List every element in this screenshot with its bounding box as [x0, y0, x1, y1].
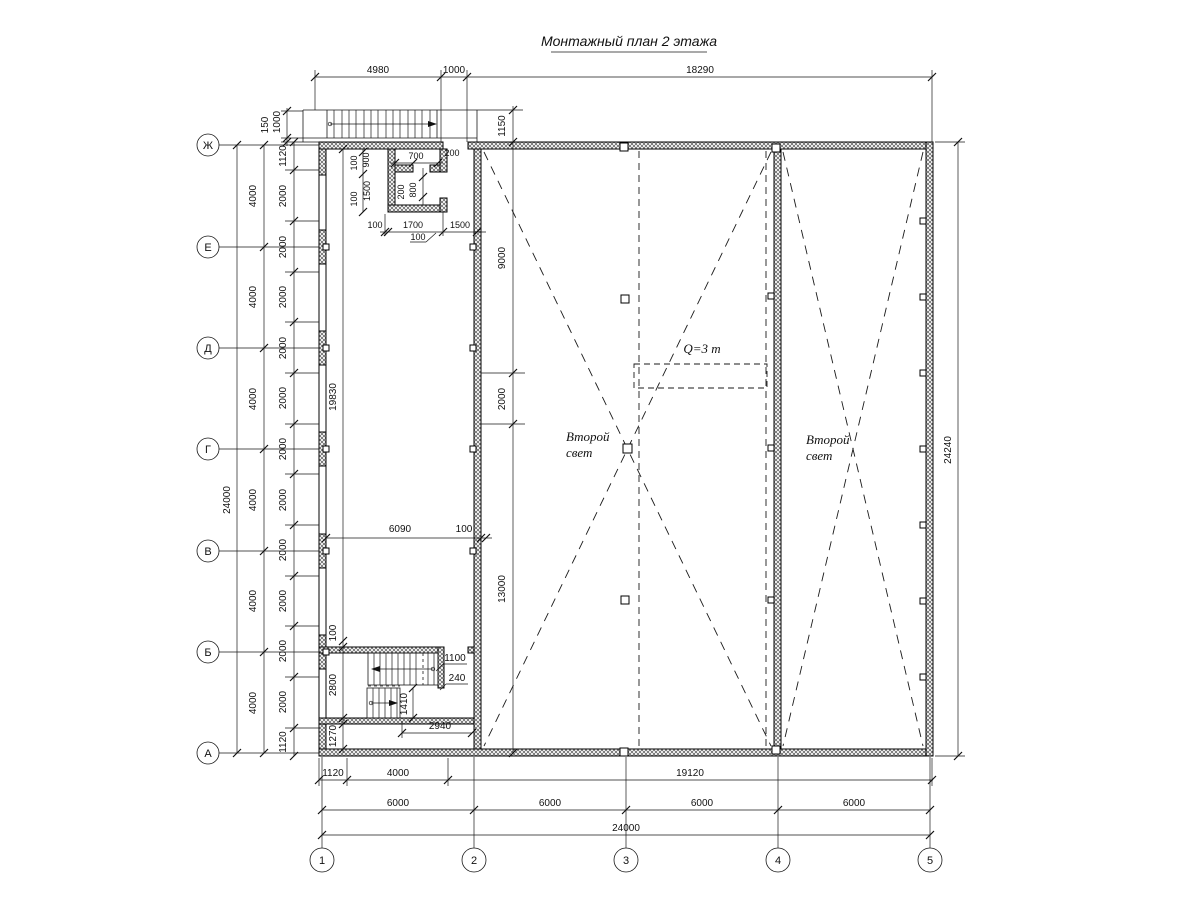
row-bubble-label: Д	[204, 343, 212, 355]
dim-label: 200	[396, 184, 406, 199]
hall-markings	[484, 151, 923, 747]
dim-label: 18290	[686, 65, 714, 76]
col-axis-lines	[322, 757, 930, 848]
row-bubble-label: Ж	[203, 140, 213, 152]
dim-label: 1500	[450, 220, 470, 230]
dim-label: 4000	[248, 387, 259, 410]
row-bubble-label: Е	[204, 242, 211, 254]
dim-label: 700	[408, 151, 423, 161]
bracing-cross-right-bay	[783, 152, 923, 746]
staircase-top	[303, 110, 477, 142]
dim-label: 6090	[389, 524, 412, 535]
wall-axis-4	[774, 149, 781, 749]
dim-label: 2000	[278, 386, 289, 409]
col-bubbles: 1 2 3 4 5	[310, 848, 942, 872]
dim-label: 2940	[429, 721, 452, 732]
dim-label: 6000	[843, 798, 866, 809]
dim-label: 2000	[278, 639, 289, 662]
dim-label: 1120	[278, 145, 289, 167]
dim-label: 100	[349, 155, 359, 170]
dim-label: 100	[410, 232, 425, 242]
svg-text:свет: свет	[806, 448, 832, 463]
dim-label: 100	[456, 524, 473, 535]
dim-label: 1410	[399, 692, 410, 715]
col-bubble-label: 4	[775, 855, 781, 867]
dim-label: 4000	[248, 184, 259, 207]
dim-label: 19830	[328, 383, 339, 411]
row-axis-lines	[219, 145, 319, 753]
dim-label: 2800	[328, 673, 339, 696]
dim-label: 240	[449, 673, 466, 684]
row-bubbles: Ж Е Д Г В Б А	[197, 134, 219, 764]
dim-label: 2000	[278, 285, 289, 308]
dim-label: 200	[444, 148, 459, 158]
dim-label: 2000	[278, 437, 289, 460]
crane-zone	[634, 364, 767, 388]
dim-label: 2000	[278, 336, 289, 359]
crane-load-label: Q=3 т	[683, 341, 720, 356]
dim-label: 900	[361, 152, 371, 167]
dim-label: 1100	[444, 653, 466, 664]
dim-label: 1120	[322, 768, 344, 779]
dim-label: 1700	[403, 220, 423, 230]
dim-label: 4980	[367, 65, 390, 76]
opening-edge-lines	[639, 151, 766, 747]
dim-label: 4000	[248, 691, 259, 714]
dim-label: 2000	[278, 488, 289, 511]
dim-label: 1000	[272, 110, 283, 133]
dim-label: 2000	[278, 589, 289, 612]
col-bubble-label: 2	[471, 855, 477, 867]
dim-label: 1270	[328, 724, 339, 747]
page-title: Монтажный план 2 этажа	[541, 33, 717, 49]
row-bubble-label: В	[204, 546, 211, 558]
svg-text:свет: свет	[566, 445, 592, 460]
dim-label: 4000	[248, 285, 259, 308]
dim-label: 1150	[497, 115, 508, 137]
center-column-marker	[623, 444, 632, 453]
col-bubble-label: 5	[927, 855, 933, 867]
floor-plan-drawing: Монтажный план 2 этажа	[0, 0, 1200, 900]
dim-label: 100	[328, 624, 339, 641]
dim-label: 2000	[497, 387, 508, 410]
dim-label: 2000	[278, 235, 289, 258]
dim-label: 24240	[943, 436, 954, 464]
dim-label: 6000	[387, 798, 410, 809]
second-light-label-2: Второй свет	[806, 432, 850, 463]
dim-label: 13000	[497, 575, 508, 603]
dim-label: 4000	[248, 488, 259, 511]
svg-text:Второй: Второй	[806, 432, 850, 447]
col-bubble-label: 1	[319, 855, 325, 867]
dim-label: 800	[408, 182, 418, 197]
second-light-label-1: Второй свет	[566, 429, 610, 460]
dim-label: 9000	[497, 246, 508, 269]
dim-label: 2000	[278, 690, 289, 713]
dim-label: 1500	[362, 181, 372, 201]
svg-text:Второй: Второй	[566, 429, 610, 444]
col-bubble-label: 3	[623, 855, 629, 867]
row-bubble-label: Б	[204, 647, 211, 659]
dim-label: 19120	[676, 768, 704, 779]
dim-label: 150	[260, 116, 271, 133]
dim-label: 1000	[443, 65, 466, 76]
dim-label: 24000	[222, 486, 233, 514]
dimension-ticks	[233, 73, 962, 839]
dim-label: 6000	[691, 798, 714, 809]
dim-label: 4000	[248, 589, 259, 612]
dim-label: 100	[367, 220, 382, 230]
row-bubble-label: Г	[205, 444, 211, 456]
dim-label: 1120	[278, 731, 289, 753]
stair-arrow-icon	[371, 666, 380, 672]
dim-label: 2000	[278, 538, 289, 561]
dim-label: 4000	[387, 768, 410, 779]
dim-label: 2000	[278, 184, 289, 207]
dim-label: 24000	[612, 823, 640, 834]
stair-arrow-icon	[428, 121, 437, 127]
row-bubble-label: А	[204, 748, 212, 760]
dim-label: 100	[349, 191, 359, 206]
dim-label: 6000	[539, 798, 562, 809]
